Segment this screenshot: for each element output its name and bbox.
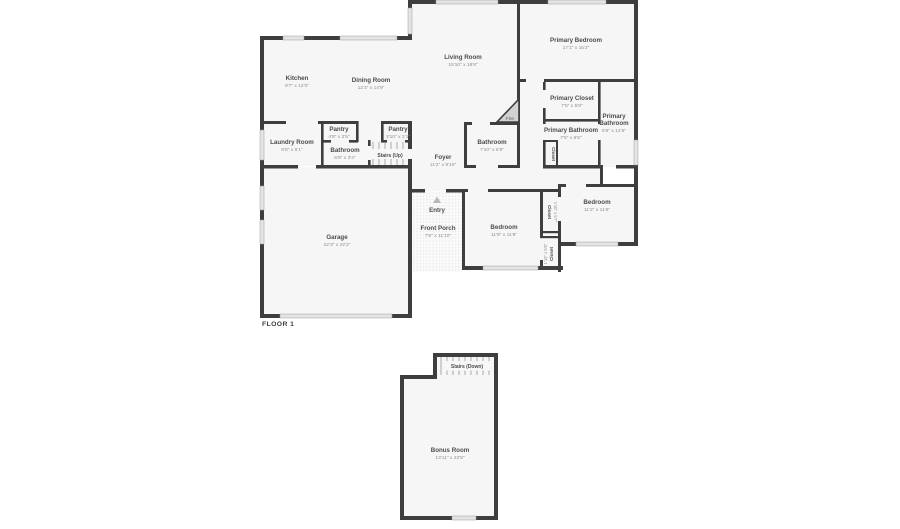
room-dims-primary-bedroom: 17'1" x 15'2" [563,45,590,51]
room-dims-garage: 22'3" x 22'2" [324,242,351,248]
room-dims-dining: 12'3" x 14'9" [358,85,385,91]
garage-door [280,314,392,318]
room-label-kitchen: Kitchen [286,75,309,82]
room-dims-closet-b: 1'10" x 5'9" [543,243,548,264]
fireplace-label: Fire [506,116,514,121]
room-label-primary-bathroom-main-2: Bathroom [599,120,629,127]
floor1-title: FLOOR 1 [262,321,294,328]
room-label-primary-closet: Primary Closet [550,95,594,102]
room-dims-primary-bathroom-main: 5'9" x 12'6" [602,128,626,134]
room-dims-bedroom-center: 11'9" x 11'9" [491,232,517,238]
room-label-bathroom-hall: Bathroom [477,139,507,146]
room-label-front-porch: Front Porch [420,225,455,232]
stairs-down-label: Stairs (Down) [451,364,484,370]
room-label-bedroom-center: Bedroom [490,224,518,231]
room-label-garage: Garage [326,234,348,241]
room-label-primary-bathroom-main-1: Primary [602,113,626,120]
room-label-closet-b: Closet [549,247,554,262]
room-label-pantry-b: Pantry [388,126,408,133]
room-label-primary-bathroom-small: Primary Bathroom [544,127,598,134]
room-label-living: Living Room [444,54,482,61]
room-dims-foyer: 11'2" x 9'10" [430,162,457,168]
stairs-up-label: Stairs (Up) [377,153,403,159]
room-label-pantry-a: Pantry [329,126,349,133]
bonus-room-window [452,516,476,520]
floor2-floor-fills [402,356,496,518]
room-label-bedroom-right: Bedroom [583,199,611,206]
room-label-laundry: Laundry Room [270,139,314,146]
floorplan-page: Kitchen 9'7" x 12'0" Dining Room 12'3" x… [0,0,900,529]
room-dims-bathroom-hall: 7'10" x 6'9" [480,147,504,153]
room-label-dining: Dining Room [352,77,391,84]
room-label-bathroom-small: Bathroom [330,147,360,154]
room-dims-pantry-b: 3'10" x 2'1" [386,134,410,140]
room-label-bonus: Bonus Room [431,447,470,454]
room-dims-bedroom-right: 11'2" x 11'6" [584,207,610,213]
room-label-primary-bedroom: Primary Bedroom [550,37,602,44]
room-label-foyer: Foyer [435,154,452,161]
room-dims-laundry: 8'6" x 6'1" [281,147,303,153]
room-dims-living: 15'10" x 18'8" [448,62,478,68]
room-dims-bathroom-small: 6'8" x 3'4" [334,155,356,161]
room-dims-primary-bathroom-small: 7'5" x 6'5" [560,135,582,141]
room-dims-pantry-a: 4'8" x 2'5" [328,134,350,140]
floorplan-canvas: Kitchen 9'7" x 12'0" Dining Room 12'3" x… [0,0,900,529]
entry-label: Entry [429,207,445,214]
room-dims-front-porch: 7'5" x 11'10" [425,233,452,239]
room-dims-bonus: 13'11" x 22'8" [435,455,464,461]
room-dims-closet-a: 1'10" x 5'7" [553,202,558,223]
room-dims-kitchen: 9'7" x 12'0" [285,83,309,89]
room-label-hall-closet: Closet [551,147,556,162]
room-label-closet-a: Closet [547,205,552,220]
room-dims-primary-closet: 7'5" x 5'8" [561,103,583,109]
